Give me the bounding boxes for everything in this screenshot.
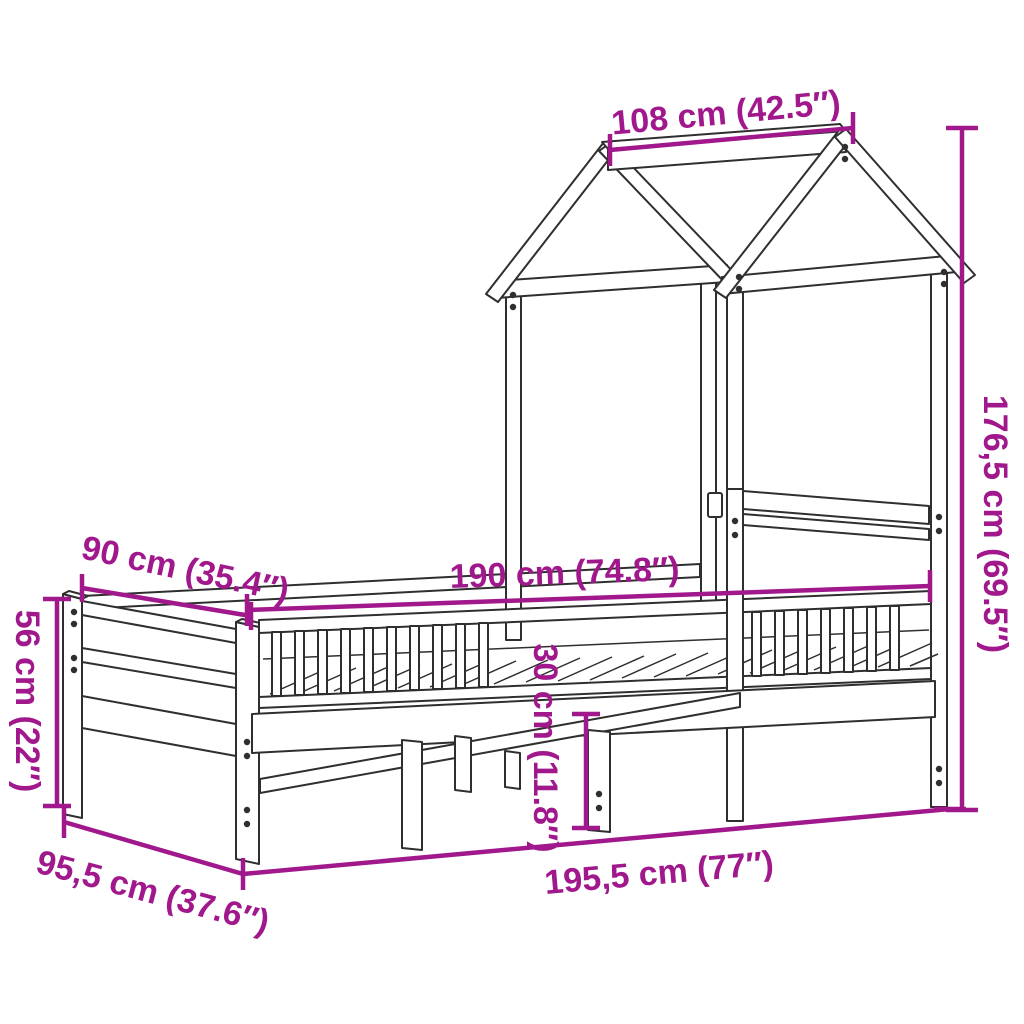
dimension-label-bed-length: 190 cm (74.8″): [449, 550, 680, 596]
guard-slats-head-section: [752, 606, 899, 676]
dimension-label-total-height: 176,5 cm (69.5″): [976, 395, 1014, 653]
canopy-post-far-right: [701, 268, 716, 613]
bed-line-drawing: 108 cm (42.5″) 176,5 cm (69.5″) 90 cm (3…: [0, 0, 1024, 1024]
footboard-rail-3: [82, 696, 236, 756]
gable-tie-beam-near: [722, 255, 957, 294]
foot-post-far: [63, 594, 82, 818]
post-bracket: [708, 493, 722, 517]
leg-far-small: [455, 736, 471, 792]
canopy-post-near-left: [727, 281, 743, 493]
bed-frame: [63, 489, 938, 864]
support-bracket: [505, 751, 520, 789]
footboard-rail-2: [82, 648, 236, 688]
dimension-label-footboard-height: 56 cm (22″): [8, 610, 46, 793]
dimension-footboard-height: 56 cm (22″): [8, 599, 71, 806]
guard-slats-foot-section: [272, 623, 488, 696]
leg-middle: [402, 740, 422, 850]
leg-center: [588, 730, 610, 832]
footboard-rail-1: [82, 601, 236, 643]
dimension-label-clearance-height: 30 cm (11.8″): [526, 643, 564, 852]
dimension-diagram: 108 cm (42.5″) 176,5 cm (69.5″) 90 cm (3…: [0, 0, 1024, 1024]
canopy-post-near-left-lower: [727, 489, 743, 821]
dimension-total-height: 176,5 cm (69.5″): [946, 128, 1014, 810]
gable-tie-beam-far: [496, 265, 727, 298]
dimension-label-total-length: 195,5 cm (77″): [543, 844, 775, 902]
